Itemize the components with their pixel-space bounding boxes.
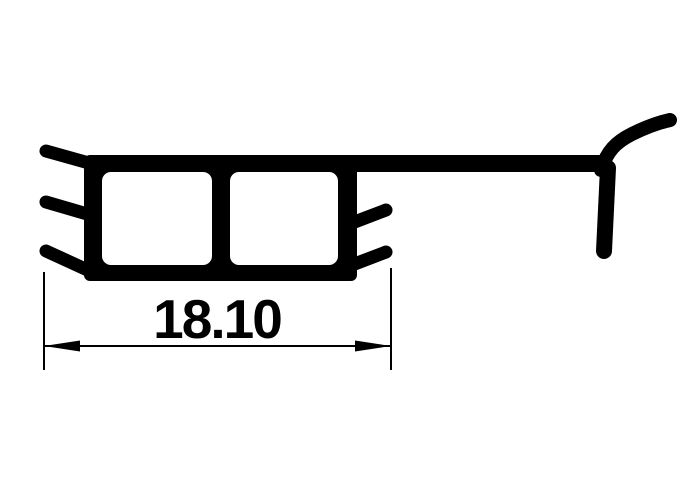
profile-chamber-right [230,172,338,265]
profile-drawing: 18.10 [0,0,700,491]
profile-chamber-left [102,172,212,265]
profile-leg [604,168,608,251]
drawing-canvas: 18.10 [0,0,700,491]
profile-top-arm [350,155,608,172]
dimension-label: 18.10 [153,288,281,350]
